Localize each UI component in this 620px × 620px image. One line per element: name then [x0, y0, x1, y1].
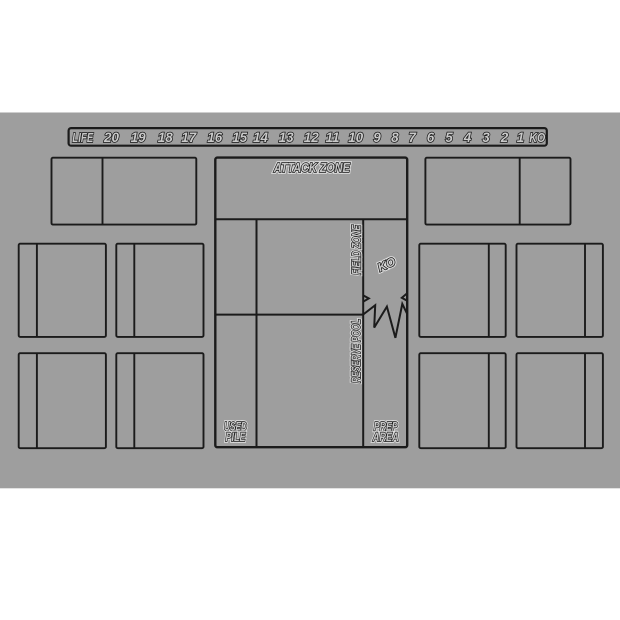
svg-text:KO: KO: [529, 131, 545, 145]
svg-text:FIELD ZONE: FIELD ZONE: [349, 224, 363, 275]
svg-text:6: 6: [427, 130, 435, 145]
svg-text:4: 4: [463, 130, 472, 145]
svg-text:17: 17: [181, 130, 198, 145]
svg-text:PILE: PILE: [226, 430, 247, 444]
svg-text:9: 9: [373, 130, 381, 145]
svg-text:3: 3: [482, 130, 490, 145]
svg-text:19: 19: [131, 130, 147, 145]
svg-text:18: 18: [158, 130, 174, 145]
svg-text:1: 1: [517, 130, 525, 145]
svg-text:11: 11: [325, 130, 339, 145]
svg-text:5: 5: [445, 130, 453, 145]
svg-text:8: 8: [391, 130, 399, 145]
svg-text:20: 20: [103, 130, 120, 145]
svg-text:16: 16: [207, 130, 223, 145]
svg-text:ATTACK ZONE: ATTACK ZONE: [273, 160, 350, 175]
svg-text:15: 15: [232, 130, 248, 145]
svg-text:12: 12: [304, 130, 320, 145]
svg-text:14: 14: [253, 130, 269, 145]
svg-text:13: 13: [279, 130, 295, 145]
svg-text:RESERVE POOL: RESERVE POOL: [349, 319, 363, 383]
svg-text:LIFE: LIFE: [72, 131, 94, 145]
svg-text:AREA: AREA: [372, 430, 399, 444]
svg-text:10: 10: [348, 130, 364, 145]
svg-text:2: 2: [500, 130, 509, 145]
